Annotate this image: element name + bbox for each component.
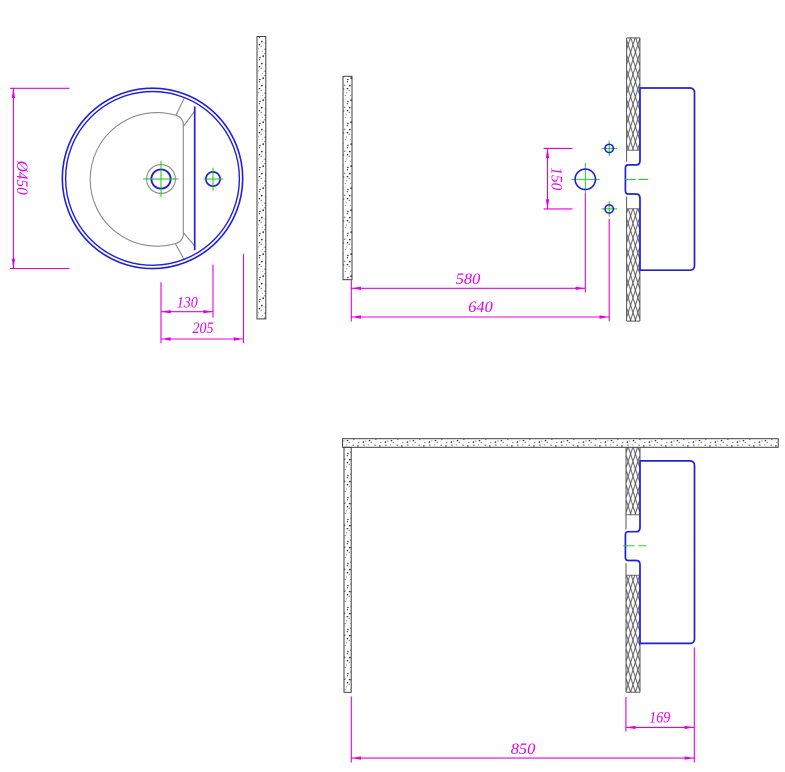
svg-text:169: 169 [649,710,670,727]
svg-text:640: 640 [468,299,493,316]
svg-text:Ø450: Ø450 [13,160,30,195]
svg-text:150: 150 [548,167,565,190]
svg-text:850: 850 [511,741,536,758]
svg-text:205: 205 [193,320,214,337]
svg-text:580: 580 [456,271,481,288]
svg-text:130: 130 [177,295,198,312]
